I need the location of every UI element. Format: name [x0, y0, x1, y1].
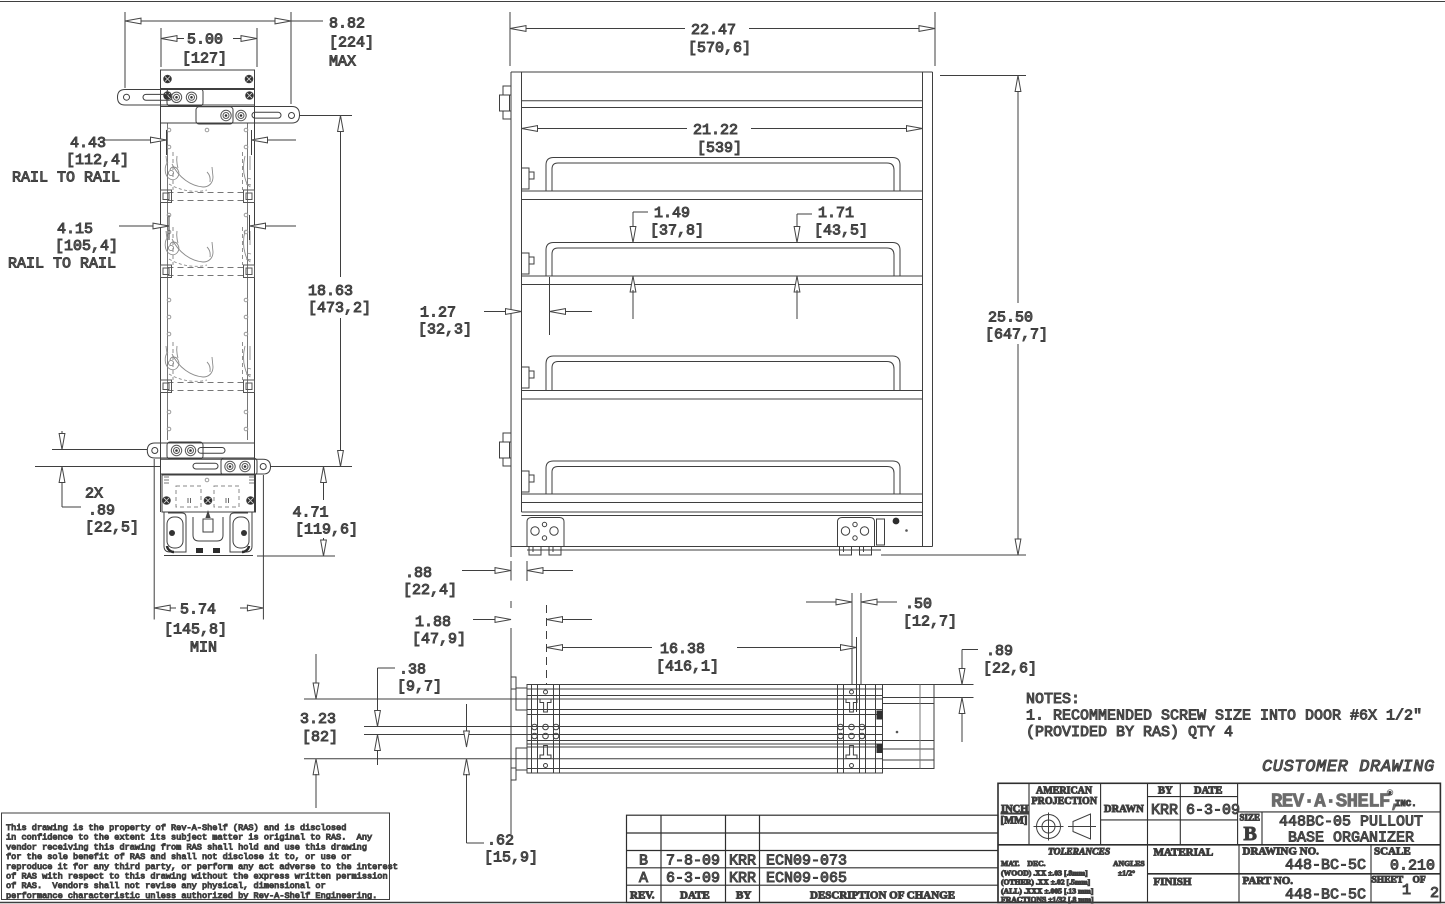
- svg-text:448-BC-5C: 448-BC-5C: [1285, 887, 1366, 904]
- svg-text:MAX: MAX: [329, 54, 356, 71]
- svg-text:1.71: 1.71: [818, 205, 854, 222]
- svg-text:[416,1]: [416,1]: [656, 659, 719, 676]
- svg-text:SCALE: SCALE: [1374, 846, 1411, 858]
- svg-text:[MM]: [MM]: [1001, 816, 1028, 827]
- svg-text:.62: .62: [487, 833, 514, 850]
- svg-text:[22,5]: [22,5]: [85, 520, 139, 537]
- svg-text:MAT. DEC.: MAT. DEC.: [1001, 859, 1046, 868]
- svg-text:2: 2: [1430, 885, 1439, 902]
- svg-text:KRR: KRR: [729, 853, 756, 870]
- svg-text:1.88: 1.88: [415, 614, 451, 631]
- svg-text:4.71: 4.71: [293, 505, 329, 522]
- svg-text:SHEET: SHEET: [1372, 876, 1404, 886]
- svg-text:reproduce it for any third par: reproduce it for any third party, or per…: [6, 862, 398, 872]
- svg-text:[105,4]: [105,4]: [55, 238, 118, 255]
- svg-text:25.50: 25.50: [988, 310, 1033, 327]
- svg-text:for the sole benefit of RAS an: for the sole benefit of RAS and shall no…: [6, 852, 352, 862]
- svg-text:TOLERANCES: TOLERANCES: [1048, 848, 1110, 858]
- svg-text:4.15: 4.15: [57, 221, 93, 238]
- svg-text:±1/2°: ±1/2°: [1118, 869, 1135, 878]
- svg-text:5.00: 5.00: [187, 32, 223, 49]
- svg-text:BY: BY: [736, 890, 751, 902]
- svg-text:KRR: KRR: [729, 870, 756, 887]
- svg-text:CUSTOMER DRAWING: CUSTOMER DRAWING: [1262, 758, 1435, 777]
- svg-text:DRAWING NO.: DRAWING NO.: [1243, 846, 1320, 858]
- svg-text:21.22: 21.22: [693, 122, 738, 139]
- svg-text:[570,6]: [570,6]: [688, 40, 751, 57]
- svg-text:16.38: 16.38: [660, 641, 705, 658]
- svg-text:DRAWN: DRAWN: [1104, 804, 1144, 815]
- svg-text:1. RECOMMENDED SCREW SIZE INTO: 1. RECOMMENDED SCREW SIZE INTO DOOR #6X …: [1026, 708, 1422, 725]
- svg-text:KRR: KRR: [1151, 802, 1178, 819]
- svg-text:B: B: [639, 853, 648, 870]
- svg-text:[43,5]: [43,5]: [814, 223, 868, 240]
- svg-text:[15,9]: [15,9]: [484, 850, 538, 867]
- svg-text:DATE: DATE: [680, 890, 710, 902]
- svg-text:(PROVIDED BY RAS) QTY 4: (PROVIDED BY RAS) QTY 4: [1026, 724, 1233, 741]
- svg-text:.50: .50: [905, 596, 932, 613]
- svg-text:[12,7]: [12,7]: [903, 614, 957, 631]
- svg-text:SIZE: SIZE: [1240, 813, 1261, 823]
- svg-text:performance characteristic unl: performance characteristic unless author…: [6, 891, 377, 901]
- svg-text:[224]: [224]: [329, 35, 374, 52]
- svg-text:PROJECTION: PROJECTION: [1032, 796, 1098, 807]
- svg-text:.38: .38: [399, 662, 426, 679]
- svg-text:3.23: 3.23: [300, 711, 336, 728]
- svg-text:DESCRIPTION OF CHANGE: DESCRIPTION OF CHANGE: [810, 890, 955, 902]
- svg-text:FINISH: FINISH: [1154, 876, 1192, 888]
- svg-text:[647,7]: [647,7]: [985, 327, 1048, 344]
- svg-text:6-3-09: 6-3-09: [1186, 802, 1240, 819]
- svg-text:[37,8]: [37,8]: [650, 223, 704, 240]
- svg-text:BASE ORGANIZER: BASE ORGANIZER: [1288, 830, 1414, 847]
- svg-text:4.43: 4.43: [70, 135, 106, 152]
- svg-text:2X: 2X: [85, 486, 103, 503]
- svg-text:REV·A·SHELF,: REV·A·SHELF,: [1271, 791, 1401, 813]
- svg-text:INC.: INC.: [1395, 799, 1417, 809]
- svg-text:[82]: [82]: [302, 729, 338, 746]
- svg-text:[539]: [539]: [697, 140, 742, 157]
- svg-text:[145,8]: [145,8]: [164, 622, 227, 639]
- svg-text:[32,3]: [32,3]: [418, 322, 472, 339]
- svg-text:448BC-05 PULLOUT: 448BC-05 PULLOUT: [1279, 814, 1423, 831]
- svg-text:of RAS with respect to this dr: of RAS with respect to this drawing with…: [6, 872, 388, 882]
- svg-text:(OTHER) .XX ±.02 [.5mm]: (OTHER) .XX ±.02 [.5mm]: [1001, 878, 1090, 887]
- svg-text:MATERIAL: MATERIAL: [1154, 847, 1214, 859]
- svg-text:INCH: INCH: [1001, 804, 1028, 815]
- svg-text:B: B: [1244, 823, 1257, 845]
- svg-text:A: A: [639, 870, 648, 887]
- svg-text:7-8-09: 7-8-09: [666, 853, 720, 870]
- svg-text:R: R: [1389, 790, 1392, 796]
- svg-text:PART NO.: PART NO.: [1243, 875, 1294, 887]
- svg-text:ECN09-065: ECN09-065: [766, 870, 847, 887]
- svg-text:18.63: 18.63: [308, 283, 353, 300]
- svg-text:AMERICAN: AMERICAN: [1036, 786, 1093, 797]
- svg-text:of RAS. Vendors shall not rev: of RAS. Vendors shall not revise any phy…: [6, 881, 326, 891]
- svg-text:22.47: 22.47: [691, 22, 736, 39]
- svg-text:[22,4]: [22,4]: [403, 582, 457, 599]
- svg-text:1.49: 1.49: [654, 205, 690, 222]
- svg-text:DATE: DATE: [1194, 786, 1222, 797]
- svg-text:RAIL TO RAIL: RAIL TO RAIL: [8, 256, 116, 273]
- svg-text:NOTES:: NOTES:: [1026, 691, 1080, 708]
- svg-text:8.82: 8.82: [329, 16, 365, 33]
- svg-text:[9,7]: [9,7]: [397, 679, 442, 696]
- svg-text:[22,6]: [22,6]: [983, 661, 1037, 678]
- svg-text:ECN09-073: ECN09-073: [766, 853, 847, 870]
- svg-text:RAIL TO RAIL: RAIL TO RAIL: [12, 170, 120, 187]
- svg-text:1.27: 1.27: [420, 305, 456, 322]
- svg-text:0.210: 0.210: [1390, 858, 1435, 875]
- svg-text:MIN: MIN: [190, 640, 217, 657]
- svg-text:in confidence to the extent it: in confidence to the extent its subject …: [6, 833, 372, 843]
- svg-text:.89: .89: [88, 503, 115, 520]
- svg-text:OF: OF: [1413, 876, 1426, 886]
- svg-text:6-3-09: 6-3-09: [666, 870, 720, 887]
- svg-text:BY: BY: [1158, 786, 1173, 797]
- svg-text:[47,9]: [47,9]: [412, 631, 466, 648]
- svg-text:5.74: 5.74: [180, 602, 216, 619]
- svg-text:[119,6]: [119,6]: [295, 522, 358, 539]
- svg-text:[473,2]: [473,2]: [308, 300, 371, 317]
- svg-text:.89: .89: [986, 643, 1013, 660]
- svg-text:1: 1: [1402, 882, 1411, 899]
- svg-text:FRACTIONS ±1/32 [.8 mm]: FRACTIONS ±1/32 [.8 mm]: [1001, 895, 1094, 904]
- svg-text:[127]: [127]: [182, 51, 227, 68]
- svg-text:.88: .88: [405, 565, 432, 582]
- svg-text:(WOOD) .XX ±.03 [.8mm]: (WOOD) .XX ±.03 [.8mm]: [1001, 869, 1088, 878]
- svg-text:[112,4]: [112,4]: [66, 152, 129, 169]
- svg-text:vendor receiving this drawing: vendor receiving this drawing from RAS s…: [6, 842, 367, 852]
- svg-text:448-BC-5C: 448-BC-5C: [1285, 857, 1366, 874]
- svg-text:ANGLES: ANGLES: [1113, 859, 1145, 868]
- svg-text:This drawing is the property o: This drawing is the property of Rev-A-Sh…: [6, 823, 346, 833]
- svg-text:REV.: REV.: [630, 890, 655, 902]
